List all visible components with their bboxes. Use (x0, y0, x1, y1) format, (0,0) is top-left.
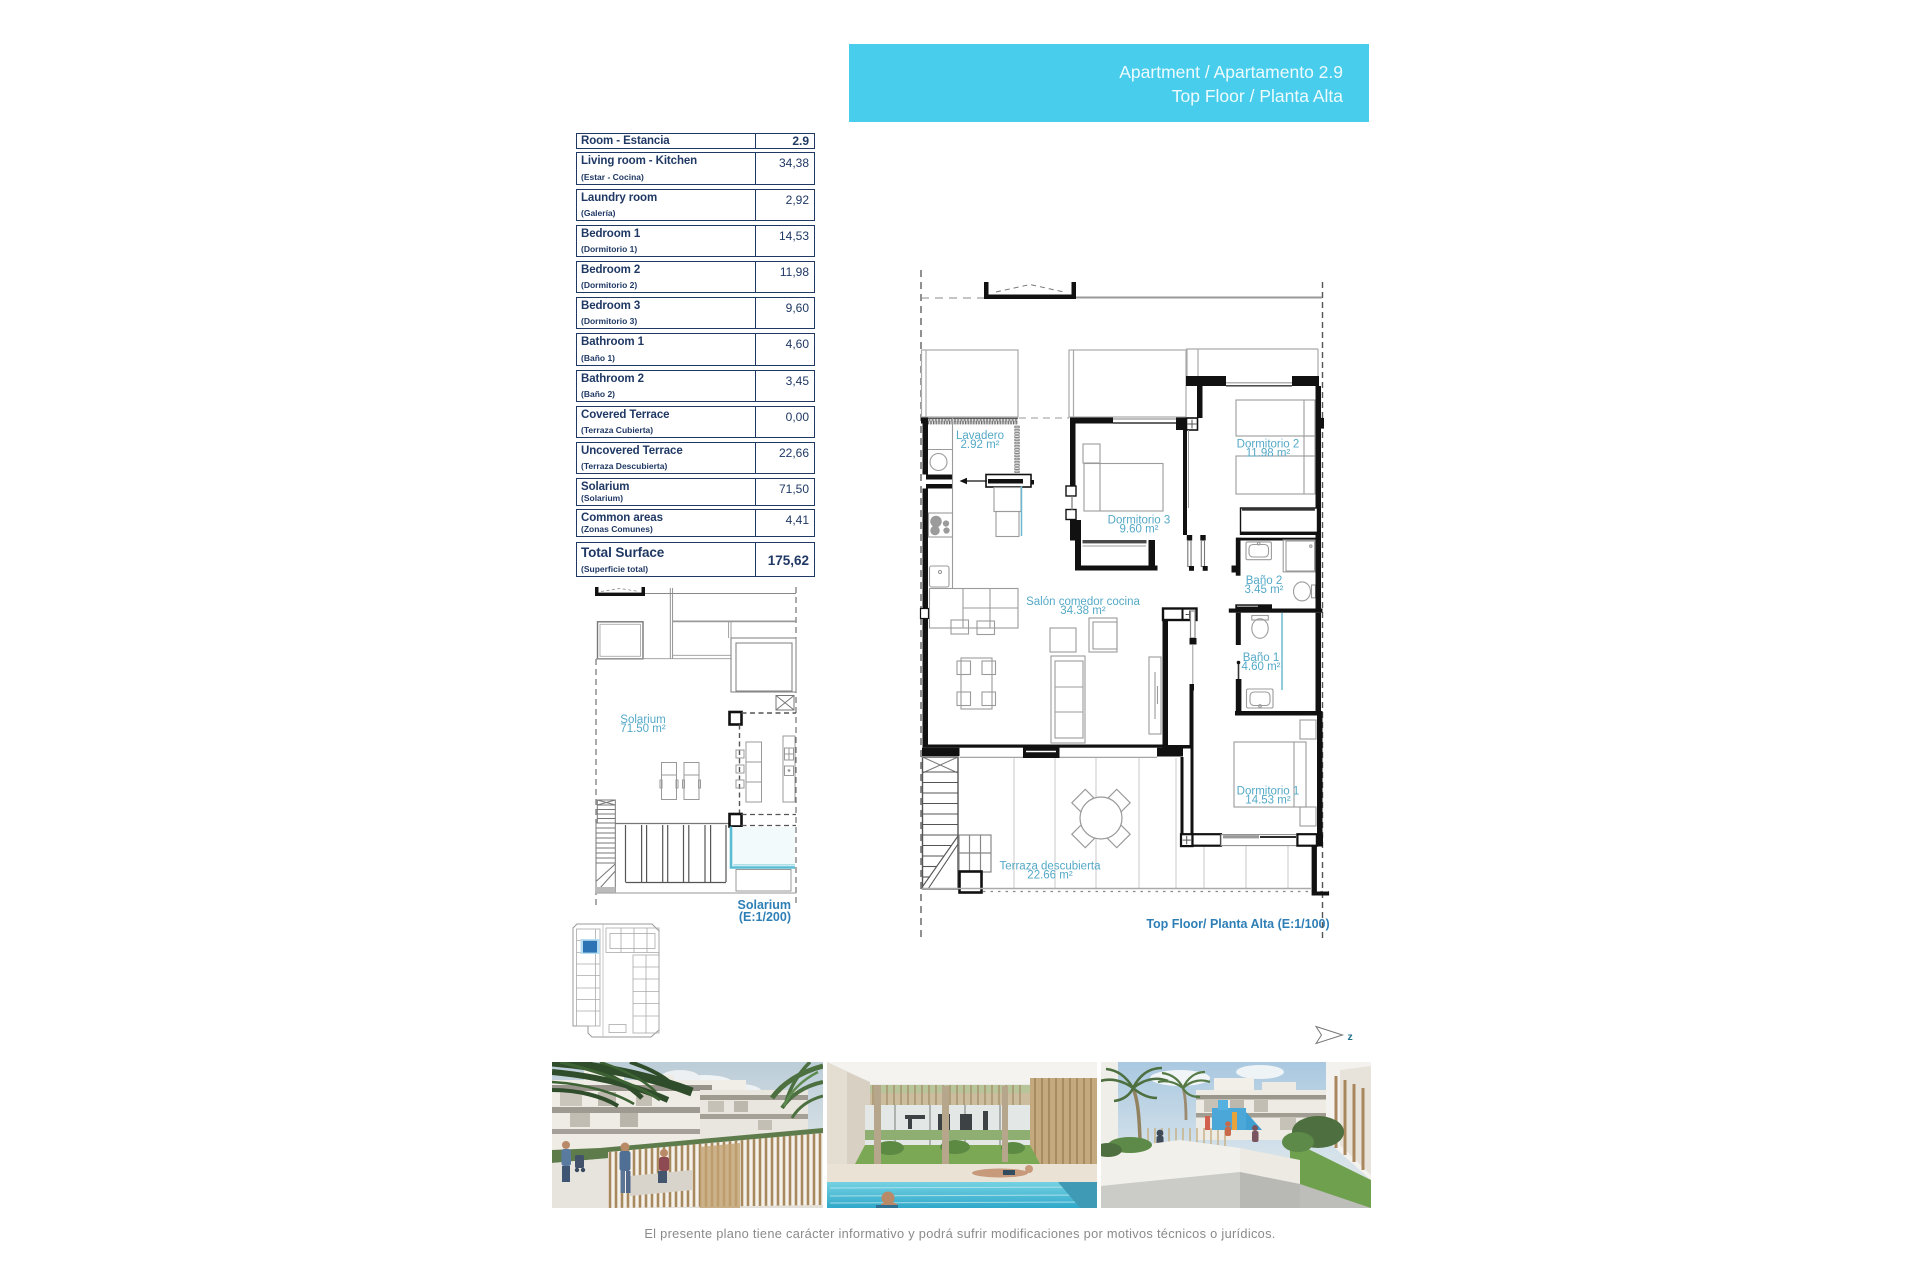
svg-text:14.53 m²: 14.53 m² (1245, 795, 1291, 807)
svg-text:4.60 m²: 4.60 m² (1242, 661, 1281, 673)
svg-text:71.50 m²: 71.50 m² (620, 723, 666, 735)
svg-text:11.98 m²: 11.98 m² (1246, 448, 1291, 460)
svg-text:z: z (1348, 1031, 1353, 1043)
svg-text:2.92 m²: 2.92 m² (961, 439, 1000, 451)
svg-text:9.60 m²: 9.60 m² (1120, 524, 1159, 536)
svg-text:34.38 m²: 34.38 m² (1060, 605, 1106, 617)
svg-text:22.66 m²: 22.66 m² (1027, 870, 1073, 882)
svg-text:3.45 m²: 3.45 m² (1245, 584, 1284, 596)
